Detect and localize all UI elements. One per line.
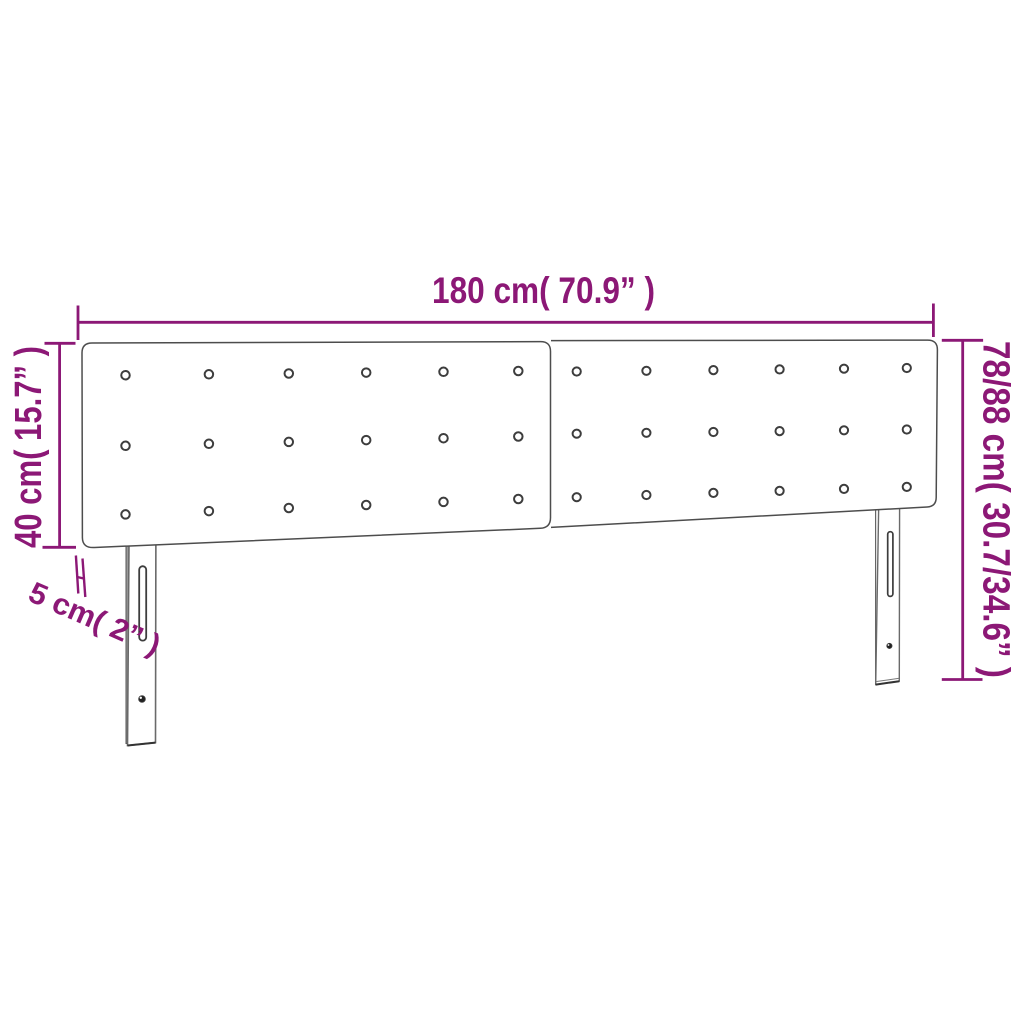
svg-text:180 cm( 70.9” ): 180 cm( 70.9” ): [432, 269, 655, 311]
svg-text:40 cm( 15.7” ): 40 cm( 15.7” ): [8, 346, 50, 548]
svg-text:78/88 cm( 30.7/34.6” ): 78/88 cm( 30.7/34.6” ): [975, 341, 1017, 678]
